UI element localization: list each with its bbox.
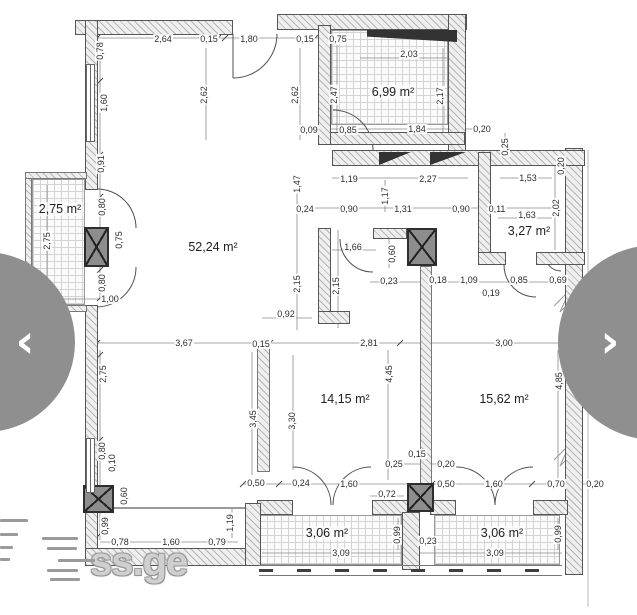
room-area-label: 14,15 m²: [318, 392, 371, 406]
dimension-label: 1,60: [339, 479, 359, 489]
dimension-label: 0,85: [509, 275, 529, 285]
dimension-label: 0,80: [97, 441, 107, 461]
dimension-label: 0,69: [548, 275, 568, 285]
dimension-label: 1,09: [459, 275, 479, 285]
wall-left-lower: [85, 305, 98, 550]
dimension-label: 0,75: [114, 230, 124, 250]
dimension-label: 3,45: [248, 409, 258, 429]
room-area-label: 6,99 m²: [370, 85, 416, 99]
dimension-label: 1,80: [239, 34, 259, 44]
dimension-label: 0,15: [251, 339, 271, 349]
dimension-label: 3,30: [287, 411, 297, 431]
floor-plan-viewer: ss.ge ‹ › 2,640,151,800,150,750,781,600,…: [0, 0, 637, 615]
thin-line: [98, 507, 246, 509]
dimension-label: 0,23: [418, 536, 438, 546]
chevron-right-icon[interactable]: ›: [601, 318, 620, 364]
window: [86, 64, 95, 142]
dimension-label: 0,50: [246, 478, 266, 488]
dimension-label: 1,17: [380, 186, 390, 206]
dimension-label: 2,62: [290, 85, 300, 105]
wall-wc-bottom-a: [478, 252, 506, 265]
watermark-line: [0, 546, 13, 549]
wall-wc-bottom-b: [536, 252, 585, 265]
dimension-label: 0,99: [100, 516, 110, 536]
dimension-label: 0,10: [107, 453, 117, 473]
dimension-label: 0,20: [556, 156, 566, 176]
dimension-label: 0,90: [339, 204, 359, 214]
dimension-label: 0,60: [119, 486, 129, 506]
dimension-label: 0,80: [97, 273, 107, 293]
wall-hall-vert: [318, 228, 331, 323]
dimension-label: 0,91: [96, 154, 106, 174]
dimension-label: 0,18: [428, 275, 448, 285]
dimension-label: 0,70: [546, 479, 566, 489]
dimension-label: 2,17: [435, 86, 445, 106]
dimension-label: 2,75: [42, 231, 52, 251]
wall-room-left: [257, 346, 270, 472]
wall-band-d: [533, 500, 568, 515]
dimension-label: 0,50: [436, 479, 456, 489]
watermark-line: [58, 559, 95, 562]
dimension-label: 1,84: [407, 124, 427, 134]
dimension-label: 3,09: [485, 548, 505, 558]
room-area-label: 52,24 m²: [186, 240, 239, 254]
dimension-label: 1,60: [484, 479, 504, 489]
dimension-label: 3,00: [494, 338, 514, 348]
dimension-label: 0,15: [407, 449, 427, 459]
dimension-label: 0,79: [207, 537, 227, 547]
dimension-label: 0,99: [553, 524, 563, 544]
dimension-label: 0,11: [488, 204, 507, 214]
dimension-label: 0,24: [295, 204, 315, 214]
dimension-label: 2,47: [329, 85, 339, 105]
dimension-label: 0,78: [95, 41, 105, 61]
watermark-line: [0, 533, 18, 536]
dimension-label: 0,19: [481, 288, 501, 298]
dimension-label: 1,63: [517, 210, 537, 220]
watermark-line: [0, 558, 10, 561]
wall-connector-left: [245, 503, 261, 566]
balcony-railing: [259, 565, 562, 576]
dimension-label: 0,75: [328, 34, 348, 44]
watermark-line: [47, 547, 77, 550]
dimension-label: 0,20: [472, 124, 492, 134]
dimension-label: 1,47: [292, 174, 302, 194]
dimension-label: 0,60: [387, 244, 397, 264]
dimension-label: 0,15: [295, 34, 315, 44]
dimension-label: 0,23: [379, 276, 399, 286]
chevron-left-icon[interactable]: ‹: [16, 318, 35, 364]
dimension-label: 1,60: [99, 93, 109, 113]
dimension-label: 2,64: [153, 34, 173, 44]
dimension-label: 0,90: [451, 204, 471, 214]
dimension-label: 4,45: [384, 364, 394, 384]
dimension-label: 0,85: [338, 125, 358, 135]
dimension-label: 1,66: [343, 242, 363, 252]
dimension-label: 2,62: [199, 85, 209, 105]
dimension-label: 1,00: [100, 294, 120, 304]
column-marker: [407, 228, 437, 266]
column-marker: [84, 227, 109, 267]
dimension-label: 2,27: [418, 174, 438, 184]
dimension-label: 0,25: [500, 137, 510, 157]
room-area-label: 15,62 m²: [477, 392, 530, 406]
dimension-label: 0,20: [436, 459, 456, 469]
dimension-label: 0,20: [585, 479, 605, 489]
wall-top-right: [277, 14, 467, 30]
dimension-label: 0,72: [377, 489, 397, 499]
dimension-label: 0,99: [392, 525, 402, 545]
rail-balcony-top: [25, 172, 87, 179]
wall-top-left: [75, 20, 233, 35]
dimension-label: 0,25: [384, 459, 404, 469]
dimension-label: 2,15: [292, 274, 302, 294]
dimension-label: 1,31: [393, 204, 413, 214]
dimension-label: 2,02: [551, 198, 561, 218]
dimension-label: 2,03: [399, 49, 419, 59]
dimension-label: 0,09: [299, 125, 319, 135]
dimension-label: 0,80: [97, 197, 107, 217]
room-area-label: 3,27 m²: [506, 224, 552, 238]
window: [86, 438, 95, 493]
dimension-label: 0,92: [276, 309, 296, 319]
wall-hall-top: [373, 228, 407, 239]
room-area-label: 3,06 m²: [479, 526, 525, 540]
room-area-label: 2,75 m²: [37, 202, 83, 216]
room-area-label: 3,06 m²: [304, 526, 350, 540]
watermark-line: [47, 569, 78, 572]
watermark-line: [42, 537, 78, 540]
dimension-label: 3,09: [331, 548, 351, 558]
dimension-label: 2,75: [98, 364, 108, 384]
dimension-label: 1,19: [339, 174, 359, 184]
wall-band-a: [257, 500, 293, 515]
column-marker: [407, 483, 434, 512]
dimension-label: 1,53: [518, 173, 538, 183]
dimension-label: 3,67: [174, 338, 194, 348]
watermark-line: [50, 578, 80, 581]
watermark-line: [0, 519, 28, 522]
dimension-label: 0,15: [199, 34, 219, 44]
wall-hall-foot: [318, 311, 350, 324]
dimension-label: 2,15: [331, 276, 341, 296]
dimension-label: 2,81: [359, 338, 379, 348]
watermark: ss.ge: [90, 540, 187, 585]
dimension-label: 1,19: [225, 513, 235, 533]
dimension-label: 0,24: [291, 478, 311, 488]
